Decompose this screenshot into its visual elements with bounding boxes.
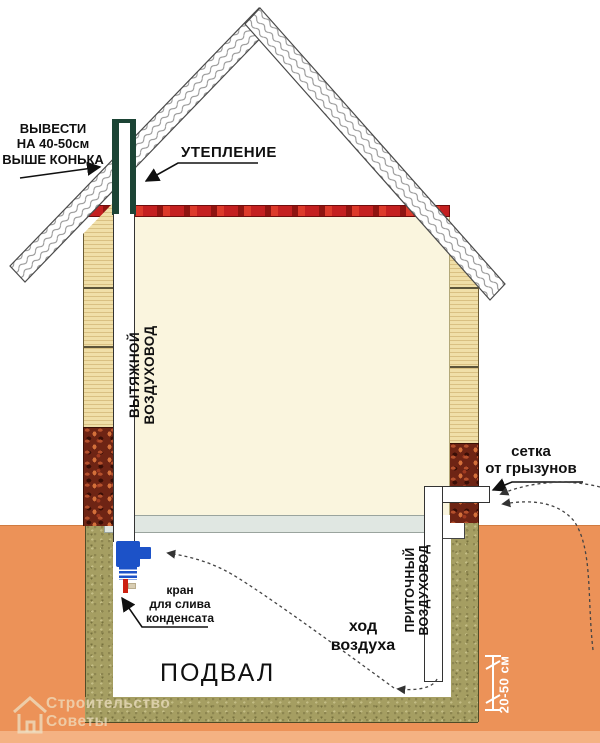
insulation-label-arrow	[146, 163, 258, 181]
label-dimension-20-50: 20-50 см	[497, 648, 512, 722]
label-condensate-valve: кран для слива конденсата	[138, 584, 222, 625]
label-line: НА 40-50см	[2, 136, 104, 151]
label-line: ВЫВЕСТИ	[2, 121, 104, 136]
watermark-text-line2: Советы	[46, 713, 108, 731]
label-vent-above-ridge: ВЫВЕСТИ НА 40-50см ВЫШЕ КОНЬКА	[2, 121, 104, 167]
ceiling-insulation-layer	[88, 205, 450, 217]
label-line: кран	[138, 584, 222, 598]
label-line: ВЫШЕ КОНЬКА	[2, 152, 104, 167]
airflow-outside-upper	[501, 482, 600, 494]
basement-wall-right	[451, 521, 479, 722]
house-interior	[113, 216, 450, 515]
label-line: от грызунов	[468, 461, 594, 478]
wall-right	[450, 228, 479, 443]
wall-left	[83, 196, 114, 427]
label-basement: ПОДВАЛ	[160, 659, 275, 688]
soil-bottom-edge	[0, 731, 600, 743]
wall-joint	[450, 366, 478, 368]
label-line: воздуха	[318, 636, 408, 655]
condensate-valve-threads	[119, 567, 137, 580]
pipe-cap	[112, 119, 136, 123]
condensate-valve-handle	[139, 547, 151, 559]
wall-joint	[84, 346, 114, 348]
vent-label-arrow	[20, 167, 100, 178]
label-insulation: УТЕПЛЕНИЕ	[181, 144, 277, 161]
basement-wall-left	[85, 525, 114, 722]
label-line: ход	[318, 617, 408, 636]
label-line: сетка	[468, 444, 594, 461]
plinth-left	[83, 427, 114, 526]
wall-joint	[84, 287, 114, 289]
wall-joint	[450, 287, 478, 289]
mesh-label-arrow	[493, 482, 583, 490]
condensate-drain-tap	[128, 583, 136, 589]
watermark-text-line1: Строительство	[46, 695, 170, 713]
pipe-wall	[130, 119, 137, 215]
label-rodent-mesh: сетка от грызунов	[468, 444, 594, 478]
exhaust-pipe-above-roof	[112, 119, 136, 215]
label-exhaust-duct: ВЫТЯЖНОЙ ВОЗДУХОВОД	[127, 290, 157, 460]
pipe-wall	[112, 119, 119, 215]
condensate-valve-body	[116, 541, 140, 567]
ventilation-diagram: ВЫВЕСТИ НА 40-50см ВЫШЕ КОНЬКА УТЕПЛЕНИЕ…	[0, 0, 600, 743]
label-line: для слива	[138, 598, 222, 612]
label-line: конденсата	[138, 612, 222, 626]
label-air-path: ход воздуха	[318, 617, 408, 655]
